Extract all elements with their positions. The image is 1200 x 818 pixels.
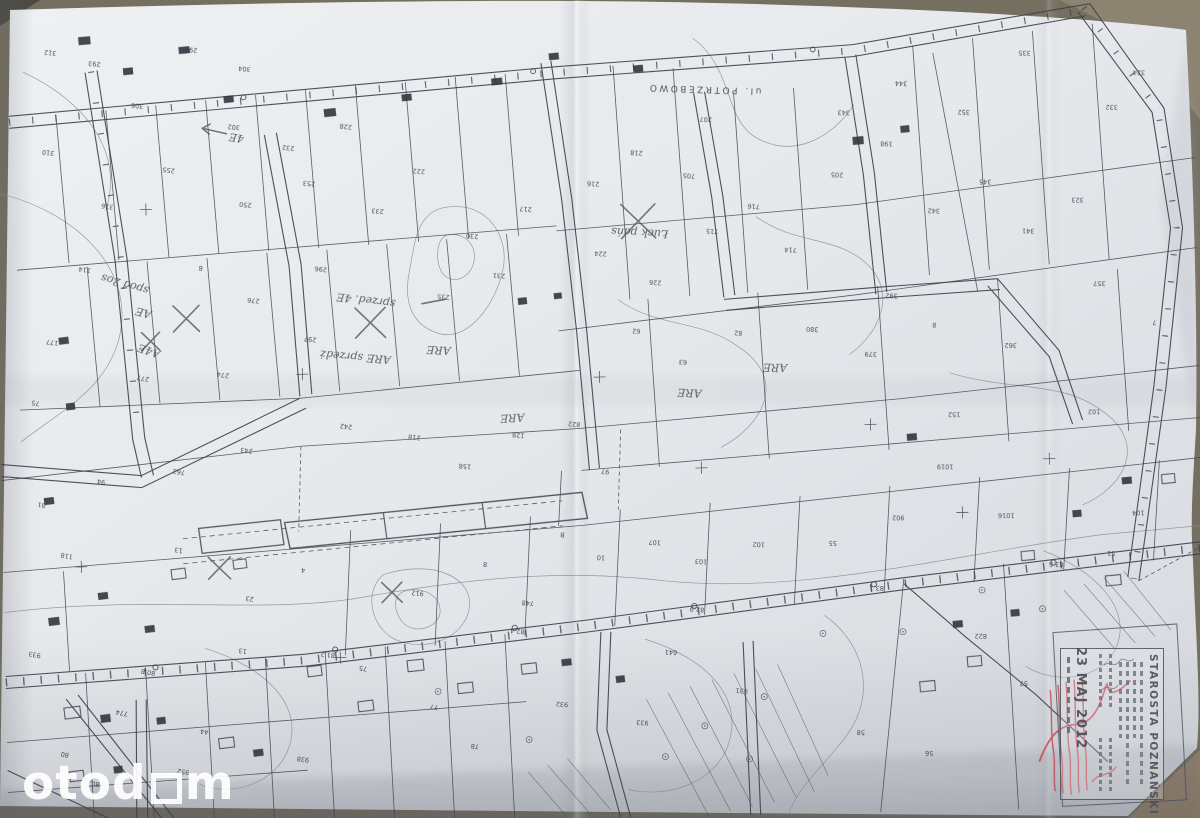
parcel-number-label: 380 bbox=[806, 325, 819, 333]
parcel-number-label: 344 bbox=[895, 79, 908, 87]
parcel-number-label: 82 bbox=[734, 329, 743, 337]
parcel-number-label: B bbox=[560, 530, 565, 538]
parcel-number-label: 902 bbox=[892, 513, 905, 521]
parcel-number-label: 56 bbox=[925, 749, 934, 757]
parcel-number-label: 8 bbox=[483, 560, 488, 568]
parcel-number-label: 316 bbox=[101, 201, 114, 211]
parcel-number-label: 224 bbox=[594, 249, 607, 258]
date-stamp-line bbox=[1067, 657, 1070, 733]
survey-map-photo-svg: 3122932973043063023102553162502531148276… bbox=[0, 0, 1200, 818]
parcel-number-label: 357 bbox=[1093, 279, 1106, 287]
parcel-number-label: 748 bbox=[521, 598, 534, 607]
parcel-number-label: 323 bbox=[1071, 196, 1084, 204]
stamp-columns bbox=[1099, 654, 1102, 794]
parcel-number-label: 1019 bbox=[937, 462, 954, 470]
stamp-columns bbox=[1109, 654, 1112, 794]
stamp-text-line bbox=[1126, 662, 1129, 786]
parcel-number-label: 75 bbox=[359, 664, 368, 673]
parcel-number-label: 104 bbox=[1132, 509, 1144, 517]
stamp-text-line bbox=[1133, 662, 1136, 738]
parcel-number-label: 716 bbox=[747, 202, 760, 211]
parcel-number-label: 931 bbox=[735, 686, 748, 695]
parcel-number-label: 207 bbox=[699, 115, 712, 124]
parcel-number-label: 81 bbox=[37, 500, 47, 509]
parcel-number-label: 228 bbox=[339, 122, 352, 131]
parcel-number-label: 250 bbox=[239, 200, 252, 209]
parcel-number-label: 226 bbox=[649, 278, 662, 287]
parcel-number-label: 253 bbox=[302, 179, 315, 188]
parcel-number-label: 822 bbox=[568, 420, 581, 429]
parcel-number-label: 232 bbox=[282, 143, 295, 152]
parcel-number-label: 341 bbox=[1022, 227, 1035, 235]
parcel-number-label: 302 bbox=[227, 122, 240, 131]
parcel-number-label: 714 bbox=[784, 245, 797, 253]
parcel-number-label: 306 bbox=[131, 101, 144, 110]
parcel-number-label: 55 bbox=[829, 539, 838, 547]
parcel-number-label: 158 bbox=[458, 462, 471, 471]
stamp-date: 23 MAJ 2012 bbox=[1073, 647, 1088, 743]
parcel-number-label: 216 bbox=[587, 179, 600, 188]
photo-of-survey-map: 3122932973043063023102553162502531148276… bbox=[0, 0, 1200, 818]
parcel-number-label: 933 bbox=[636, 718, 649, 727]
handwritten-annotation: ARE bbox=[763, 361, 788, 374]
parcel-number-label: 362 bbox=[1004, 341, 1017, 349]
parcel-number-label: 1016 bbox=[998, 511, 1015, 519]
parcel-number-label: 218 bbox=[408, 433, 421, 442]
parcel-number-label: 912 bbox=[411, 588, 424, 597]
parcel-number-label: 63 bbox=[679, 358, 688, 366]
parcel-number-label: 310 bbox=[42, 148, 55, 157]
parcel-number-label: 13 bbox=[238, 646, 247, 655]
handwritten-annotation: ARE bbox=[500, 411, 526, 425]
parcel-number-label: 75 bbox=[31, 398, 40, 407]
otodom-square-glyph bbox=[151, 773, 182, 804]
parcel-number-label: 82.9 bbox=[690, 605, 705, 614]
parcel-number-label: 312 bbox=[44, 48, 57, 57]
parcel-number-label: 62 bbox=[632, 327, 641, 335]
watermark-text-pre: otod bbox=[22, 760, 147, 807]
parcel-number-label: 332 bbox=[1105, 103, 1118, 111]
parcel-number-label: 222 bbox=[412, 167, 425, 176]
parcel-number-label: 242 bbox=[339, 422, 352, 431]
parcel-number-label: 345 bbox=[979, 178, 992, 186]
parcel-number-label: 97 bbox=[601, 467, 610, 476]
parcel-number-label: 352 bbox=[957, 108, 970, 116]
otodom-watermark: otod m bbox=[22, 760, 235, 807]
parcel-number-label: 77 bbox=[430, 703, 439, 712]
parcel-number-label: 82.4 bbox=[510, 626, 525, 635]
stamp-text-line bbox=[1119, 662, 1122, 738]
parcel-number-label: 230 bbox=[466, 232, 479, 241]
parcel-number-label: 13 bbox=[174, 546, 183, 555]
parcel-number-label: 304 bbox=[238, 64, 251, 73]
parcel-number-label: 255 bbox=[162, 165, 175, 174]
parcel-number-label: 243 bbox=[240, 446, 253, 456]
stamp-organization: STAROSTA POZNAŃSKI bbox=[1147, 654, 1159, 794]
parcel-number-label: 218 bbox=[630, 148, 643, 157]
parcel-number-label: 233 bbox=[371, 206, 384, 215]
parcel-number-label: 938 bbox=[296, 754, 309, 764]
parcel-number-label: 932 bbox=[555, 700, 568, 709]
parcel-number-label: 379 bbox=[864, 350, 877, 358]
parcel-number-label: 235 bbox=[437, 292, 450, 301]
parcel-number-label: 205 bbox=[831, 170, 844, 178]
handwritten-annotation: ARE bbox=[677, 386, 703, 400]
parcel-number-label: 152 bbox=[948, 410, 961, 418]
parcel-number-label: 822 bbox=[974, 632, 987, 640]
parcel-number-label: 342 bbox=[927, 206, 940, 214]
parcel-number-label: 128 bbox=[512, 431, 525, 440]
parcel-number-label: 10 bbox=[597, 553, 606, 562]
parcel-number-label: 705 bbox=[683, 171, 696, 180]
handwritten-annotation: 4E bbox=[228, 130, 246, 145]
parcel-number-label: 297 bbox=[185, 45, 198, 54]
parcel-number-label: 102 bbox=[1088, 408, 1100, 416]
parcel-number-label: 102 bbox=[752, 540, 765, 548]
parcel-number-label: 198 bbox=[880, 139, 893, 147]
parcel-number-label: 297 bbox=[304, 334, 317, 343]
parcel-number-label: 343 bbox=[837, 108, 850, 116]
parcel-number-label: 83.6 bbox=[1049, 560, 1064, 568]
parcel-number-label: 296 bbox=[314, 264, 327, 273]
parcel-number-label: 231 bbox=[493, 271, 506, 280]
parcel-number-label: 335 bbox=[1018, 49, 1031, 57]
parcel-number-label: 44 bbox=[200, 727, 209, 736]
parcel-number-label: 78 bbox=[470, 742, 479, 751]
parcel-number-label: 51 bbox=[1107, 549, 1115, 557]
parcel-number-label: 23 bbox=[245, 594, 254, 603]
parcel-number-label: 107 bbox=[648, 538, 661, 547]
stamp-text-line bbox=[1140, 662, 1143, 786]
parcel-number-label: 293 bbox=[88, 59, 101, 68]
parcel-number-label: 276 bbox=[247, 296, 260, 305]
parcel-number-label: 8 bbox=[932, 321, 936, 329]
parcel-number-label: 324 bbox=[1133, 68, 1146, 76]
parcel-number-label: 94 bbox=[96, 477, 106, 486]
parcel-number-label: 58 bbox=[857, 728, 866, 736]
parcel-number-label: 7 bbox=[1152, 318, 1156, 326]
parcel-number-label: 715 bbox=[706, 227, 719, 236]
parcel-number-label: 103 bbox=[695, 557, 708, 566]
date-stamp: 23 MAJ 2012 bbox=[1058, 647, 1088, 743]
parcel-number-label: 83.1 bbox=[869, 584, 884, 592]
handwritten-annotation: ARE bbox=[426, 343, 452, 357]
parcel-number-label: 392 bbox=[885, 291, 898, 299]
parcel-number-label: 641 bbox=[665, 648, 678, 657]
parcel-number-label: 217 bbox=[519, 205, 532, 214]
parcel-number-label: 57 bbox=[1020, 679, 1028, 687]
watermark-text-post: m bbox=[185, 760, 235, 807]
